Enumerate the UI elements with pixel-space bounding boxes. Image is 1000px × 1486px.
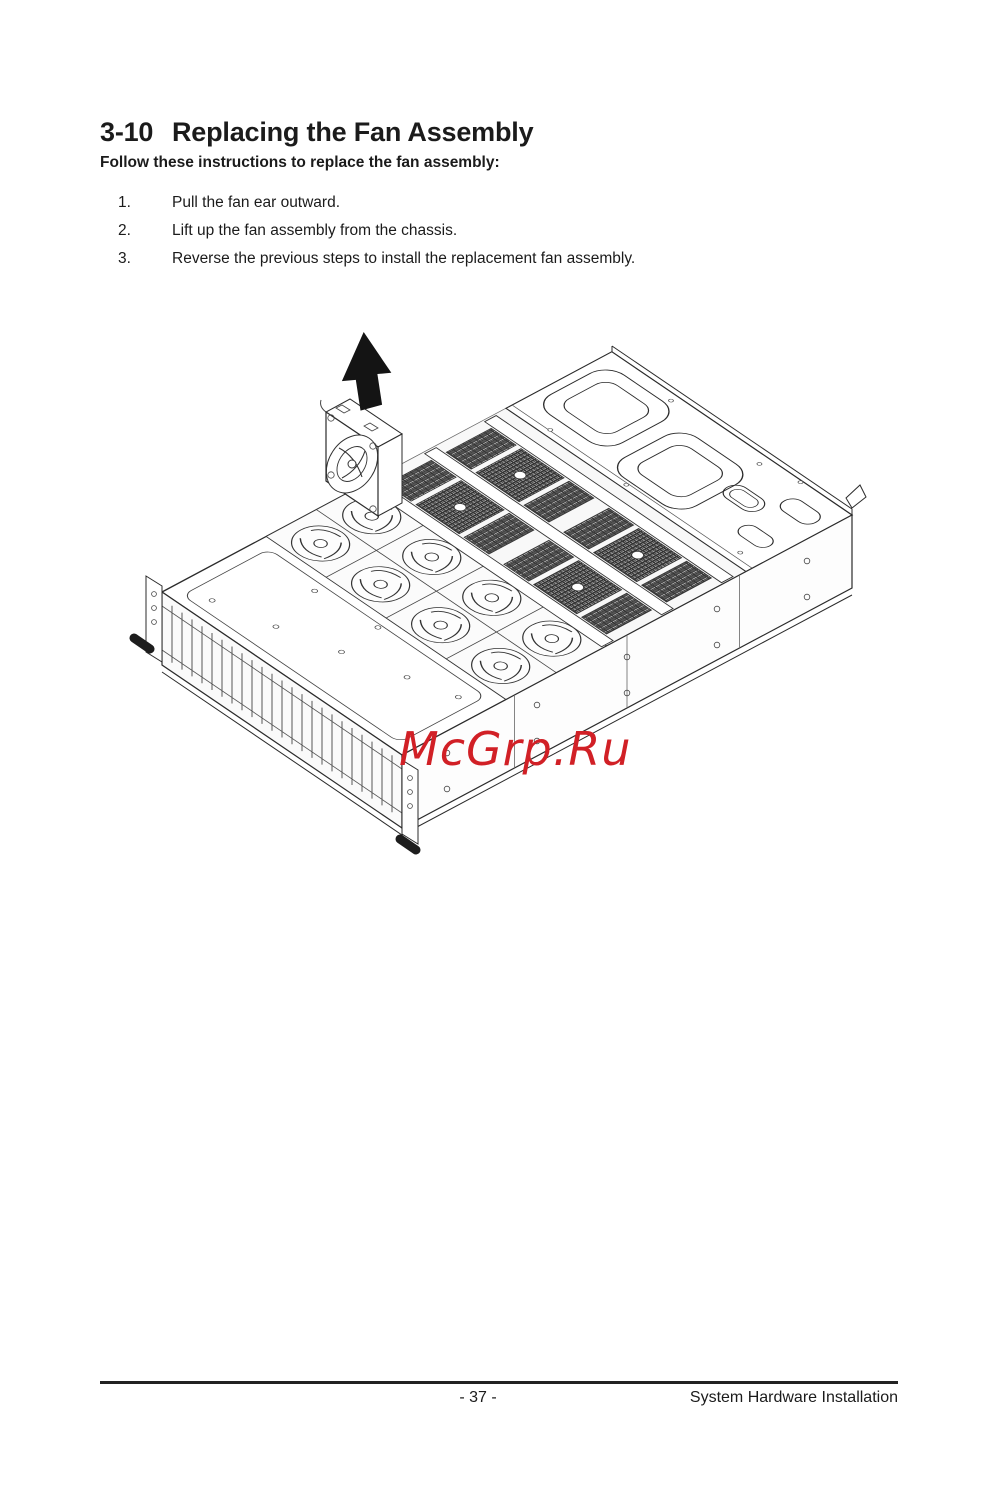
step-number: 1.	[118, 189, 172, 217]
step-number: 2.	[118, 217, 172, 245]
up-arrow-icon	[338, 330, 395, 412]
section-heading: 3-10Replacing the Fan Assembly	[100, 117, 533, 148]
footer-rule	[100, 1381, 898, 1384]
instruction-steps: 1.Pull the fan ear outward. 2.Lift up th…	[118, 189, 635, 273]
rear-corner-tab	[846, 485, 866, 508]
watermark: McGrp.Ru	[399, 722, 631, 776]
step-text: Reverse the previous steps to install th…	[172, 250, 635, 267]
step-text: Lift up the fan assembly from the chassi…	[172, 222, 457, 239]
intro-text: Follow these instructions to replace the…	[100, 154, 500, 172]
server-illustration	[100, 320, 900, 865]
step-number: 3.	[118, 245, 172, 273]
manual-page: { "page": { "section_number": "3-10", "s…	[0, 0, 1000, 1486]
step-item: 1.Pull the fan ear outward.	[118, 189, 635, 217]
fan-replacement-illustration	[100, 320, 900, 865]
footer-title: System Hardware Installation	[690, 1389, 898, 1407]
step-text: Pull the fan ear outward.	[172, 194, 340, 211]
removed-fan-assembly	[316, 399, 402, 516]
section-title: Replacing the Fan Assembly	[172, 117, 533, 147]
section-number: 3-10	[100, 117, 172, 148]
step-item: 3.Reverse the previous steps to install …	[118, 245, 635, 273]
step-item: 2.Lift up the fan assembly from the chas…	[118, 217, 635, 245]
